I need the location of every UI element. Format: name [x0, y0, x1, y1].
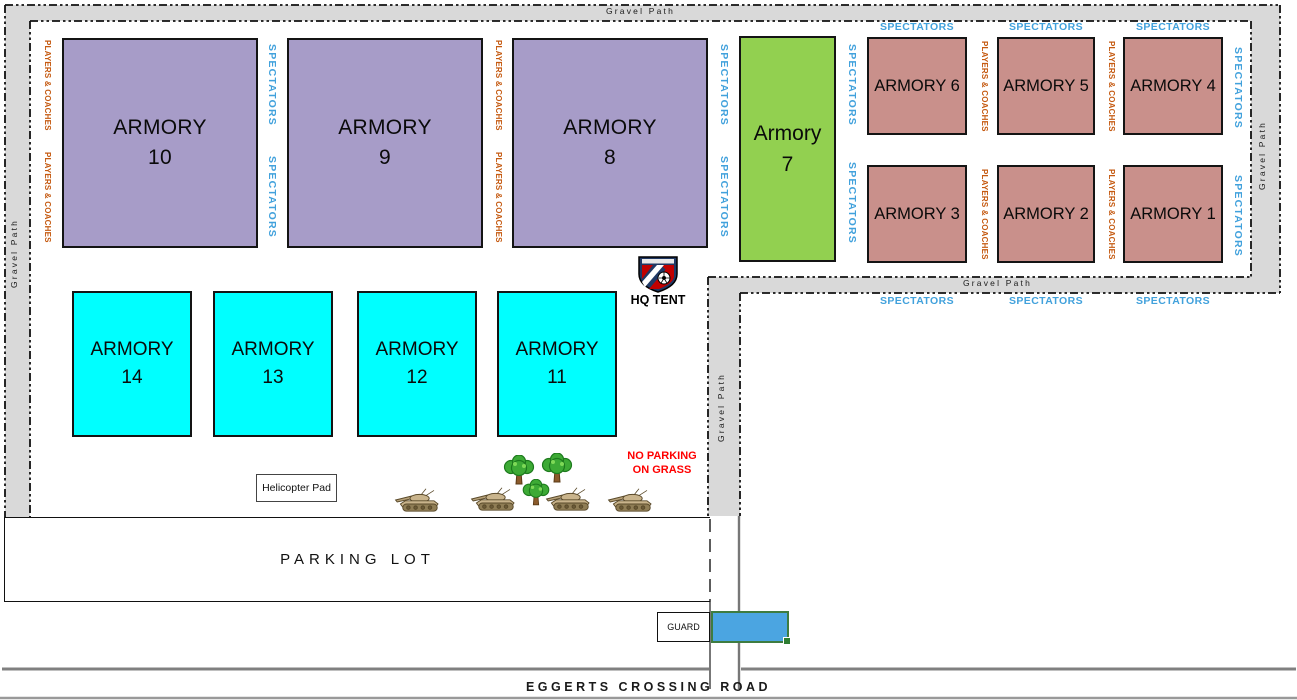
field-armory-8-label: ARMORY [563, 113, 657, 143]
players-coaches-label: PLAYERS & COACHES [1103, 167, 1116, 262]
helicopter-pad-label: Helicopter Pad [262, 482, 331, 494]
spectators-label: SPECTATORS [997, 295, 1095, 308]
field-armory-6[interactable]: ARMORY 6 [867, 37, 967, 135]
players-coaches-label: PLAYERS & COACHES [976, 167, 989, 262]
field-armory-14[interactable]: ARMORY 14 [72, 291, 192, 437]
hq-tent-label: HQ TENT [617, 293, 699, 307]
field-armory-13[interactable]: ARMORY 13 [213, 291, 333, 437]
players-coaches-label: PLAYERS & COACHES [39, 150, 52, 244]
no-parking-sign: NO PARKING ON GRASS [608, 450, 716, 478]
field-armory-2-label: ARMORY 2 [1003, 205, 1089, 224]
field-armory-3[interactable]: ARMORY 3 [867, 165, 967, 263]
field-armory-9[interactable]: ARMORY 9 [287, 38, 483, 248]
field-armory-1-label: ARMORY 1 [1130, 205, 1216, 224]
spectators-label: SPECTATORS [844, 162, 858, 244]
players-coaches-label: PLAYERS & COACHES [39, 38, 52, 132]
spectators-label: SPECTATORS [716, 150, 730, 244]
spectators-label: SPECTATORS [1123, 295, 1223, 308]
field-armory-5-label: ARMORY 5 [1003, 77, 1089, 96]
road-label: EGGERTS CROSSING ROAD [0, 680, 1297, 694]
gravel-path-label-right: Gravel Path [1257, 103, 1273, 208]
tank-icon[interactable] [545, 485, 593, 513]
field-armory-2[interactable]: ARMORY 2 [997, 165, 1095, 263]
field-armory-5[interactable]: ARMORY 5 [997, 37, 1095, 135]
spectators-label: SPECTATORS [264, 150, 278, 244]
gravel-path-label-middle: Gravel Path [716, 357, 732, 457]
field-armory-7[interactable]: Armory 7 [739, 36, 836, 262]
field-armory-3-label: ARMORY 3 [874, 205, 960, 224]
guard-label: GUARD [667, 622, 700, 632]
field-armory-9-number: 9 [379, 143, 391, 173]
spectators-label: SPECTATORS [844, 44, 858, 126]
entrance-gate[interactable] [711, 611, 789, 643]
spectators-label: SPECTATORS [1230, 175, 1244, 257]
tank-icon[interactable] [607, 486, 655, 514]
spectators-label: SPECTATORS [867, 21, 967, 34]
field-armory-14-label: ARMORY [90, 336, 173, 365]
guard-booth[interactable]: GUARD [657, 612, 710, 642]
gravel-path-label-lower: Gravel Path [930, 278, 1065, 288]
field-armory-10-label: ARMORY [113, 113, 207, 143]
no-parking-line1: NO PARKING [608, 450, 716, 464]
tank-icon[interactable] [470, 485, 518, 513]
spectators-label: SPECTATORS [264, 38, 278, 132]
players-coaches-label: PLAYERS & COACHES [976, 39, 989, 134]
spectators-label: SPECTATORS [1230, 47, 1244, 129]
spectators-label: SPECTATORS [716, 38, 730, 132]
selection-handle-icon[interactable] [783, 637, 791, 645]
field-armory-10-number: 10 [148, 143, 172, 173]
field-armory-14-number: 14 [121, 364, 142, 393]
field-armory-8[interactable]: ARMORY 8 [512, 38, 708, 248]
spectators-label: SPECTATORS [867, 295, 967, 308]
field-armory-9-label: ARMORY [338, 113, 432, 143]
field-armory-13-label: ARMORY [231, 336, 314, 365]
field-armory-12-number: 12 [406, 364, 427, 393]
field-armory-11-label: ARMORY [515, 336, 598, 365]
no-parking-line2: ON GRASS [608, 464, 716, 478]
field-armory-4-label: ARMORY 4 [1130, 77, 1216, 96]
tank-icon[interactable] [394, 486, 442, 514]
field-armory-12-label: ARMORY [375, 336, 458, 365]
field-armory-11[interactable]: ARMORY 11 [497, 291, 617, 437]
field-armory-12[interactable]: ARMORY 12 [357, 291, 477, 437]
parking-lot-label: PARKING LOT [280, 551, 435, 568]
field-armory-10[interactable]: ARMORY 10 [62, 38, 258, 248]
field-armory-6-label: ARMORY 6 [874, 77, 960, 96]
field-armory-7-number: 7 [782, 149, 794, 181]
field-armory-8-number: 8 [604, 143, 616, 173]
parking-lot: PARKING LOT [4, 517, 710, 602]
field-armory-13-number: 13 [262, 364, 283, 393]
spectators-label: SPECTATORS [997, 21, 1095, 34]
spectators-label: SPECTATORS [1123, 21, 1223, 34]
field-armory-7-label: Armory [754, 118, 822, 150]
helicopter-pad[interactable]: Helicopter Pad [256, 474, 337, 502]
field-map: Gravel Path Gravel Path Gravel Path Grav… [0, 0, 1297, 700]
gravel-path-label-left: Gravel Path [9, 203, 25, 303]
field-armory-4[interactable]: ARMORY 4 [1123, 37, 1223, 135]
players-coaches-label: PLAYERS & COACHES [490, 150, 503, 244]
players-coaches-label: PLAYERS & COACHES [490, 38, 503, 132]
gravel-path-label-top: Gravel Path [548, 6, 733, 16]
field-armory-11-number: 11 [547, 364, 567, 393]
field-armory-1[interactable]: ARMORY 1 [1123, 165, 1223, 263]
players-coaches-label: PLAYERS & COACHES [1103, 39, 1116, 134]
hq-tent-logo-icon[interactable] [637, 256, 679, 293]
